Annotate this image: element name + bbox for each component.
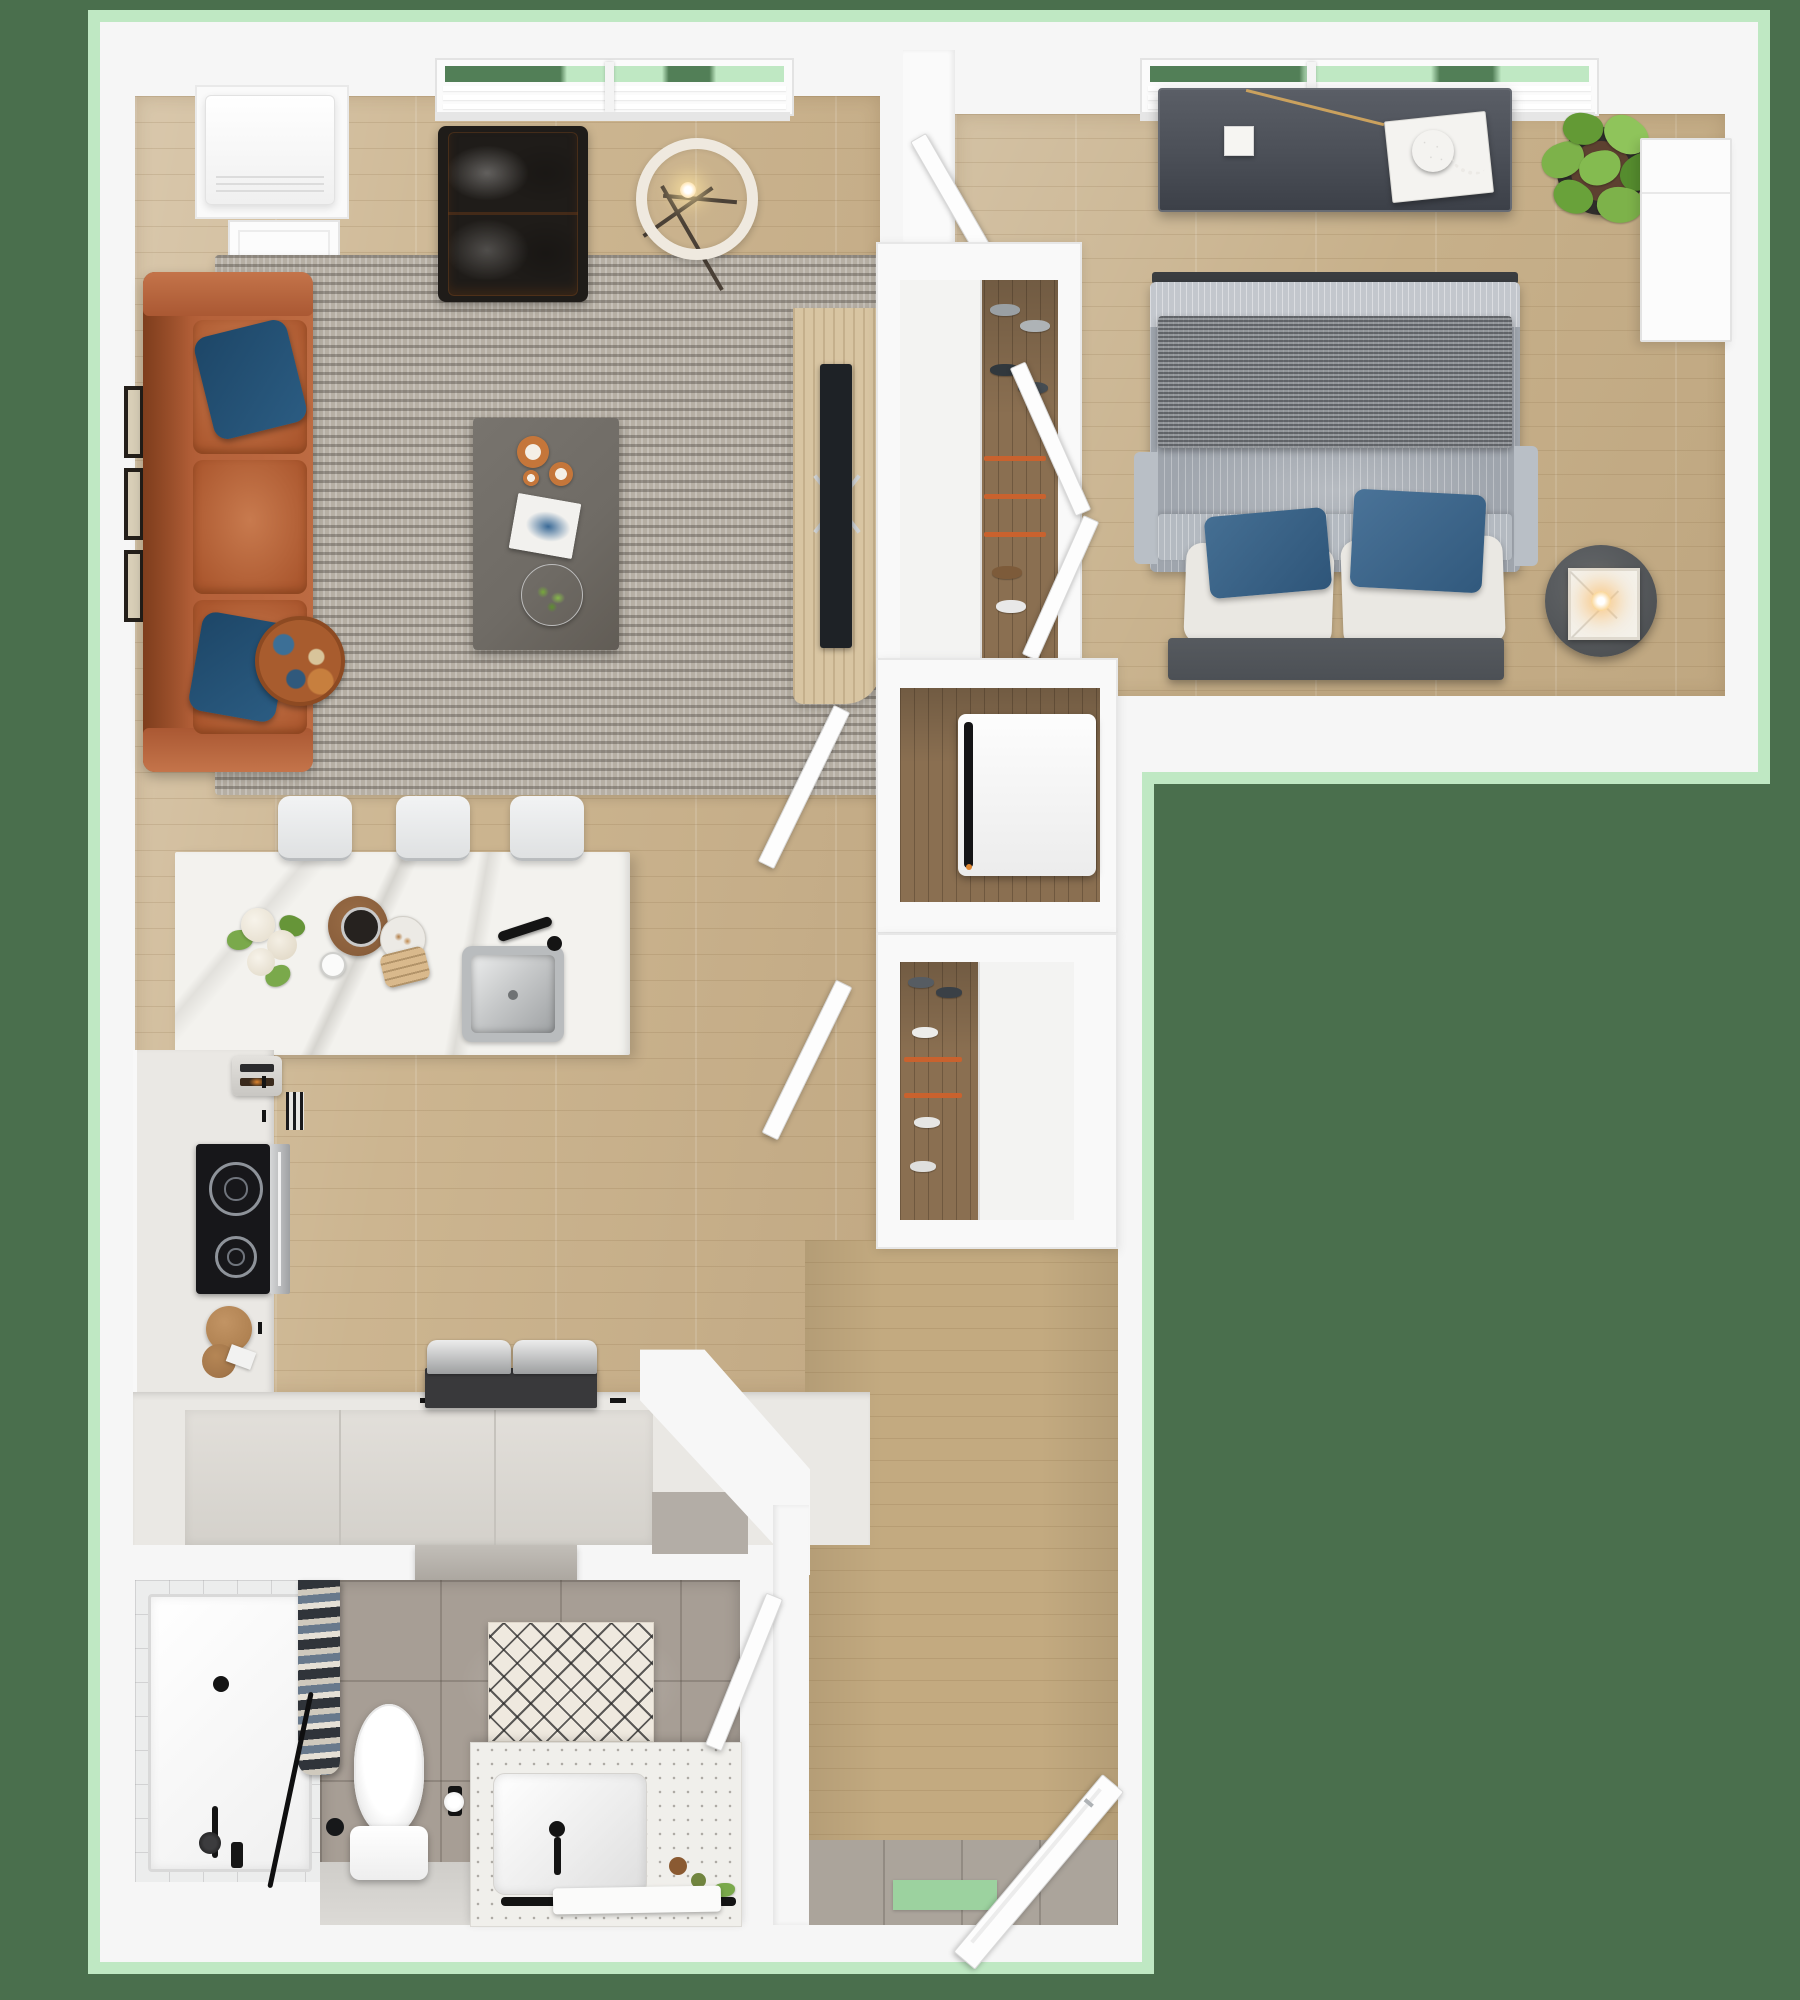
bed-pillow-blue <box>1204 507 1333 599</box>
shoe-shelf <box>904 1057 962 1062</box>
corridor-wall <box>773 1505 809 1925</box>
shoe-shelf <box>984 532 1046 537</box>
sink-faucet-base <box>547 936 562 951</box>
shoe-shelf <box>984 456 1046 461</box>
shower-curtain <box>298 1580 340 1775</box>
counter-vent <box>286 1092 304 1130</box>
sink-faucet <box>497 916 553 943</box>
leather-sofa <box>143 272 313 772</box>
double-bed <box>1134 268 1538 688</box>
vanity-basin <box>493 1773 647 1895</box>
bar-stool <box>510 796 584 861</box>
copper-candle <box>523 470 539 486</box>
glowing-lamp-bulb <box>1591 591 1611 611</box>
cooktop <box>196 1144 270 1294</box>
walk-in-shower <box>135 1580 320 1882</box>
burner-ring <box>209 1162 263 1216</box>
sofa-backrest <box>143 272 191 772</box>
bedside-table <box>1545 545 1657 657</box>
bed-pillow-blue <box>1350 489 1487 594</box>
shoe-shelf <box>904 1093 962 1098</box>
oven-door-edge <box>270 1144 290 1294</box>
flower-vase <box>225 900 310 995</box>
art-book <box>509 493 582 559</box>
lamp-bulb-glow <box>680 182 696 198</box>
walk-in-closet <box>876 242 1082 701</box>
decor-plate <box>521 564 583 626</box>
coffee-table <box>473 418 619 650</box>
pony-wall-shelf <box>415 1545 577 1585</box>
tv-console <box>793 308 881 704</box>
toilet-tank <box>350 1826 428 1880</box>
patterned-round-pillow <box>255 616 345 706</box>
bathroom-doorway-tile <box>652 1492 748 1554</box>
appliance-lid <box>427 1340 511 1374</box>
soap-dish <box>669 1857 687 1875</box>
wardrobe <box>1640 138 1732 342</box>
island-sink <box>462 946 564 1042</box>
kitchen-island <box>175 852 630 1055</box>
counter-appliance <box>425 1368 597 1408</box>
coral-ornament <box>1412 130 1454 172</box>
appliance-lid <box>513 1340 597 1374</box>
gold-decor-stick <box>1246 89 1385 126</box>
toilet-paper-roll <box>444 1792 464 1812</box>
washing-machine <box>958 714 1096 876</box>
lattice-bath-mat <box>488 1622 654 1742</box>
cabinet-handle <box>262 1110 266 1122</box>
coffee-cup <box>320 952 346 978</box>
toilet-bowl <box>354 1704 424 1836</box>
shoe-shelf <box>984 494 1046 499</box>
tufted-lounge-chair <box>438 126 588 302</box>
sink-drain <box>508 990 518 1000</box>
toilet-flush-button <box>326 1818 344 1836</box>
cabinet-handle <box>610 1398 626 1403</box>
lower-cabinet-top <box>185 1410 653 1545</box>
duvet-side-fold <box>1134 452 1158 564</box>
french-press <box>341 907 381 947</box>
shampoo-bottle <box>231 1842 243 1868</box>
serving-tray <box>328 896 388 956</box>
green-door-mat <box>893 1880 997 1910</box>
closet-sliding-panel <box>978 962 1074 1220</box>
window-sill-shadow <box>435 112 790 121</box>
wall-tv <box>820 364 852 648</box>
sofa-armrest <box>143 728 313 772</box>
ring-floor-lamp <box>628 132 758 282</box>
burner-ring <box>215 1236 257 1278</box>
closet-sliding-panel <box>900 280 982 668</box>
bar-stool <box>396 796 470 861</box>
linen-closet <box>876 933 1118 1249</box>
cabinet-handle <box>262 1076 266 1088</box>
toaster <box>232 1056 282 1096</box>
window-glass <box>1150 66 1589 82</box>
basin-faucet-base <box>549 1821 565 1837</box>
dresser-console <box>1158 88 1512 212</box>
shower-tray <box>148 1594 312 1872</box>
window-glass <box>445 66 784 82</box>
sofa-cushion <box>193 460 307 594</box>
lamp-ring <box>636 138 758 260</box>
refrigerator <box>205 95 335 205</box>
copper-candle <box>517 436 549 468</box>
living-room-window <box>435 58 794 116</box>
bed-throw-blanket <box>1158 316 1512 448</box>
laundry-closet <box>876 658 1118 934</box>
shower-knob <box>199 1832 221 1854</box>
cabinet-handle <box>258 1322 262 1334</box>
headboard-bench <box>1168 638 1504 680</box>
copper-candle <box>549 462 573 486</box>
shower-drain <box>213 1676 229 1692</box>
vanity-counter <box>470 1742 742 1927</box>
floor-plan-canvas <box>0 0 1800 2000</box>
duvet-side-fold <box>1514 446 1538 566</box>
sofa-armrest <box>143 272 313 316</box>
towel <box>553 1886 721 1915</box>
decor-cube <box>1224 126 1254 156</box>
bar-stool <box>278 796 352 861</box>
basin-faucet-stem <box>554 1837 561 1875</box>
